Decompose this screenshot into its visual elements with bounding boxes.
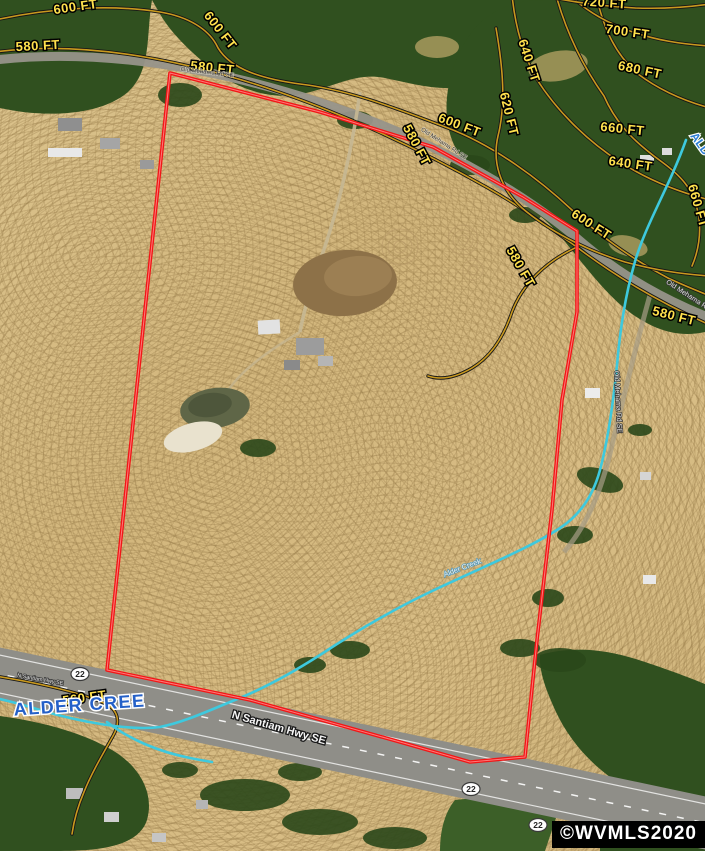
building bbox=[100, 138, 120, 149]
building bbox=[662, 148, 672, 155]
building bbox=[104, 812, 119, 822]
building bbox=[585, 388, 600, 398]
ring-feature bbox=[394, 241, 406, 253]
grass-clearing bbox=[415, 36, 459, 58]
building bbox=[58, 118, 82, 131]
contour-580-spur bbox=[428, 248, 575, 378]
building bbox=[643, 575, 656, 584]
farmhouse bbox=[258, 319, 281, 334]
ring-feature bbox=[468, 265, 478, 275]
tree-clump bbox=[282, 809, 358, 835]
tree-clump bbox=[158, 83, 202, 107]
ring-feature bbox=[453, 230, 473, 250]
outbuilding bbox=[284, 360, 300, 370]
highway-shield-22: 22 bbox=[71, 668, 89, 681]
highway-shield-22: 22 bbox=[462, 783, 480, 796]
tree-clump bbox=[534, 648, 586, 672]
outbuilding bbox=[318, 356, 333, 366]
tree-clump bbox=[200, 779, 290, 811]
tree-clump bbox=[532, 589, 564, 607]
ring-feature bbox=[382, 229, 418, 265]
watermark-text: ©WVMLS2020 bbox=[560, 823, 697, 844]
ring-feature bbox=[458, 235, 468, 245]
building bbox=[640, 472, 651, 480]
tree-clump bbox=[363, 827, 427, 849]
barn bbox=[296, 338, 324, 355]
highway-shield-22: 22 bbox=[529, 819, 547, 832]
building bbox=[196, 800, 208, 809]
watermark: ©WVMLS2020 bbox=[552, 821, 705, 848]
route-number: 22 bbox=[533, 820, 543, 830]
map-overlay: 22 22 22 600 FT 580 FT 580 FT 600 FT 600… bbox=[0, 0, 705, 851]
mls-aerial-map: 22 22 22 600 FT 580 FT 580 FT 600 FT 600… bbox=[0, 0, 705, 851]
tree-clump bbox=[240, 439, 276, 457]
field-ring-features bbox=[382, 225, 483, 280]
tree-clump bbox=[162, 762, 198, 778]
building bbox=[152, 833, 166, 842]
tree-clump bbox=[294, 657, 326, 673]
tree-clump bbox=[628, 424, 652, 436]
route-number: 22 bbox=[75, 669, 85, 679]
route-number: 22 bbox=[466, 784, 476, 794]
ring-feature bbox=[463, 260, 483, 280]
building bbox=[48, 148, 82, 157]
building bbox=[140, 160, 154, 169]
elevation-label: 580 FT bbox=[15, 37, 60, 54]
ring-feature bbox=[388, 235, 412, 259]
elevation-label: 580 FT bbox=[503, 244, 538, 290]
